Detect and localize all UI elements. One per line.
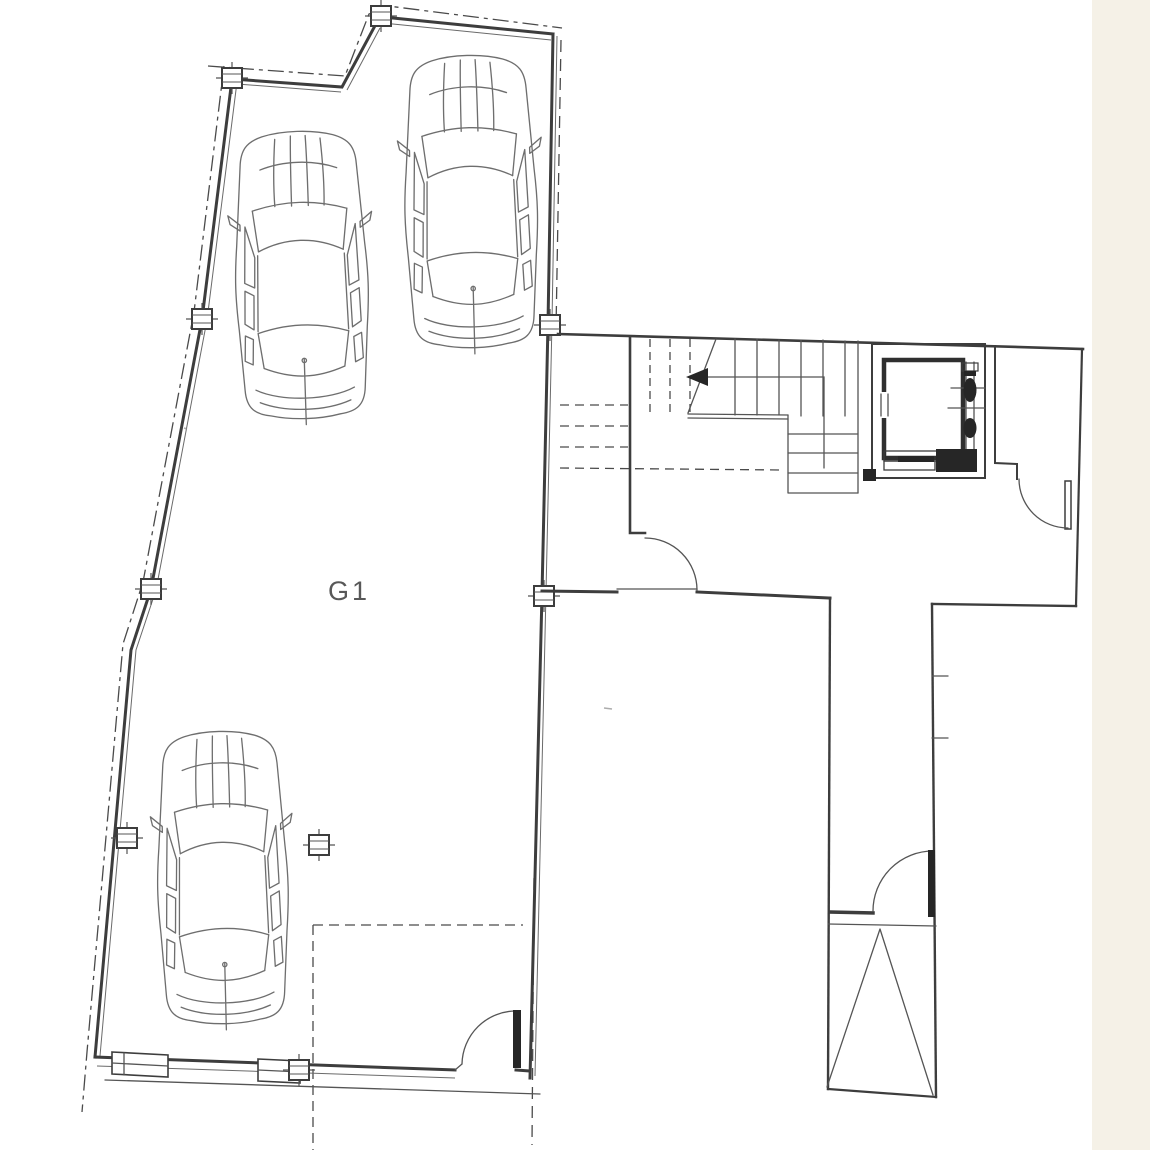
- door-leaf: [513, 1010, 521, 1068]
- door-sill: [830, 912, 873, 913]
- paper-background: [0, 0, 1150, 1150]
- floor-plan-page: G1: [0, 0, 1150, 1150]
- scan-speck: [604, 708, 612, 709]
- scan-speck: [184, 428, 187, 429]
- door-leaf: [928, 850, 935, 917]
- door-leaf: [1065, 481, 1071, 529]
- paper-edge-shadow: [1092, 0, 1150, 1150]
- floor-plan-drawing: G1: [0, 0, 1150, 1150]
- room-label: G1: [328, 576, 370, 606]
